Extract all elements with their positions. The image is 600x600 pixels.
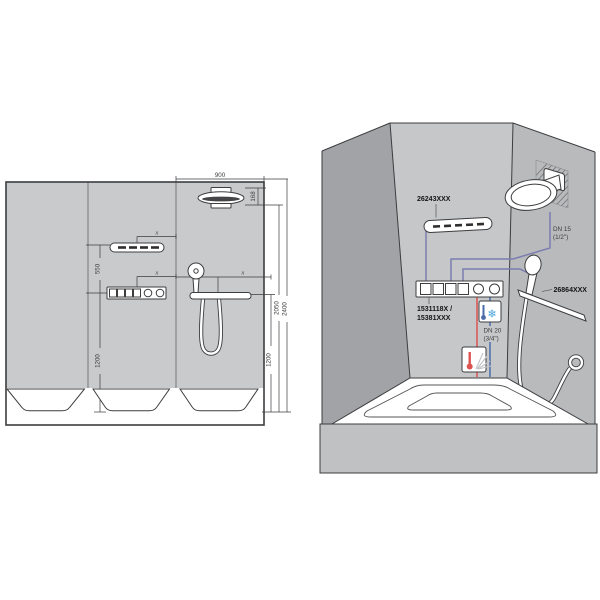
- dim-2050-label: 2050: [274, 301, 281, 315]
- tray-left: [7, 389, 85, 411]
- dim-x2-label: x: [155, 270, 159, 277]
- tray-right: [180, 389, 258, 411]
- dim-2400-label: 2400: [282, 302, 289, 316]
- cold-water-symbol: ❄: [479, 301, 501, 322]
- shower-trays: [7, 389, 258, 411]
- shoulder-shower-front-view: [110, 243, 164, 252]
- dim-1200-right-label: 1200: [266, 353, 273, 367]
- installation-diagram-page: 900 168 1200 2050 2400: [0, 0, 600, 600]
- dn20-line2: (3/4"): [484, 336, 499, 343]
- shower-spray-face: [202, 197, 240, 202]
- dn15-line1: DN 15: [553, 226, 571, 233]
- hand-shower-code-label: 26864XXX: [554, 287, 588, 294]
- dn20-line1: DN 20: [484, 328, 502, 335]
- dn15-line2: (1/2"): [553, 234, 568, 241]
- tub-apron: [320, 424, 597, 473]
- valve-perspective: [416, 281, 503, 297]
- elevation-diagram: 900 168 1200 2050 2400: [6, 172, 291, 425]
- diagram-canvas: 900 168 1200 2050 2400: [0, 0, 600, 600]
- shower-shelf: [190, 293, 251, 300]
- shower-mount-bottom: [211, 204, 231, 209]
- snowflake-icon: ❄: [487, 308, 496, 321]
- valve-code-label-line2: 15381XXX: [417, 315, 451, 322]
- tray-middle: [93, 389, 170, 411]
- dim-x3-label: x: [241, 270, 245, 277]
- hot-thermometer-icon: [469, 352, 471, 364]
- perspective-diagram: ❄ DN 20 (3/4") DN 15 (1/2"): [320, 123, 600, 473]
- valve-front-view: [107, 287, 166, 299]
- hand-shower-head: [188, 263, 204, 279]
- dim-x1-label: x: [155, 230, 159, 237]
- cold-thermometer-icon: [483, 305, 485, 316]
- hand-shower-handle: [193, 279, 199, 294]
- valve-code-label-line1: 1531118X /: [417, 306, 452, 313]
- dim-550-label: 550: [95, 263, 102, 274]
- wall-panels: [6, 182, 264, 388]
- dn20-label: DN 20 (3/4"): [482, 326, 504, 343]
- shoulder-shower-code-label: 26243XXX: [417, 196, 451, 203]
- dim-1200-left-label: 1200: [95, 354, 102, 368]
- dim-900-label: 900: [215, 172, 226, 179]
- dim-168-label: 168: [250, 191, 257, 202]
- dimension-900: 900: [176, 172, 288, 182]
